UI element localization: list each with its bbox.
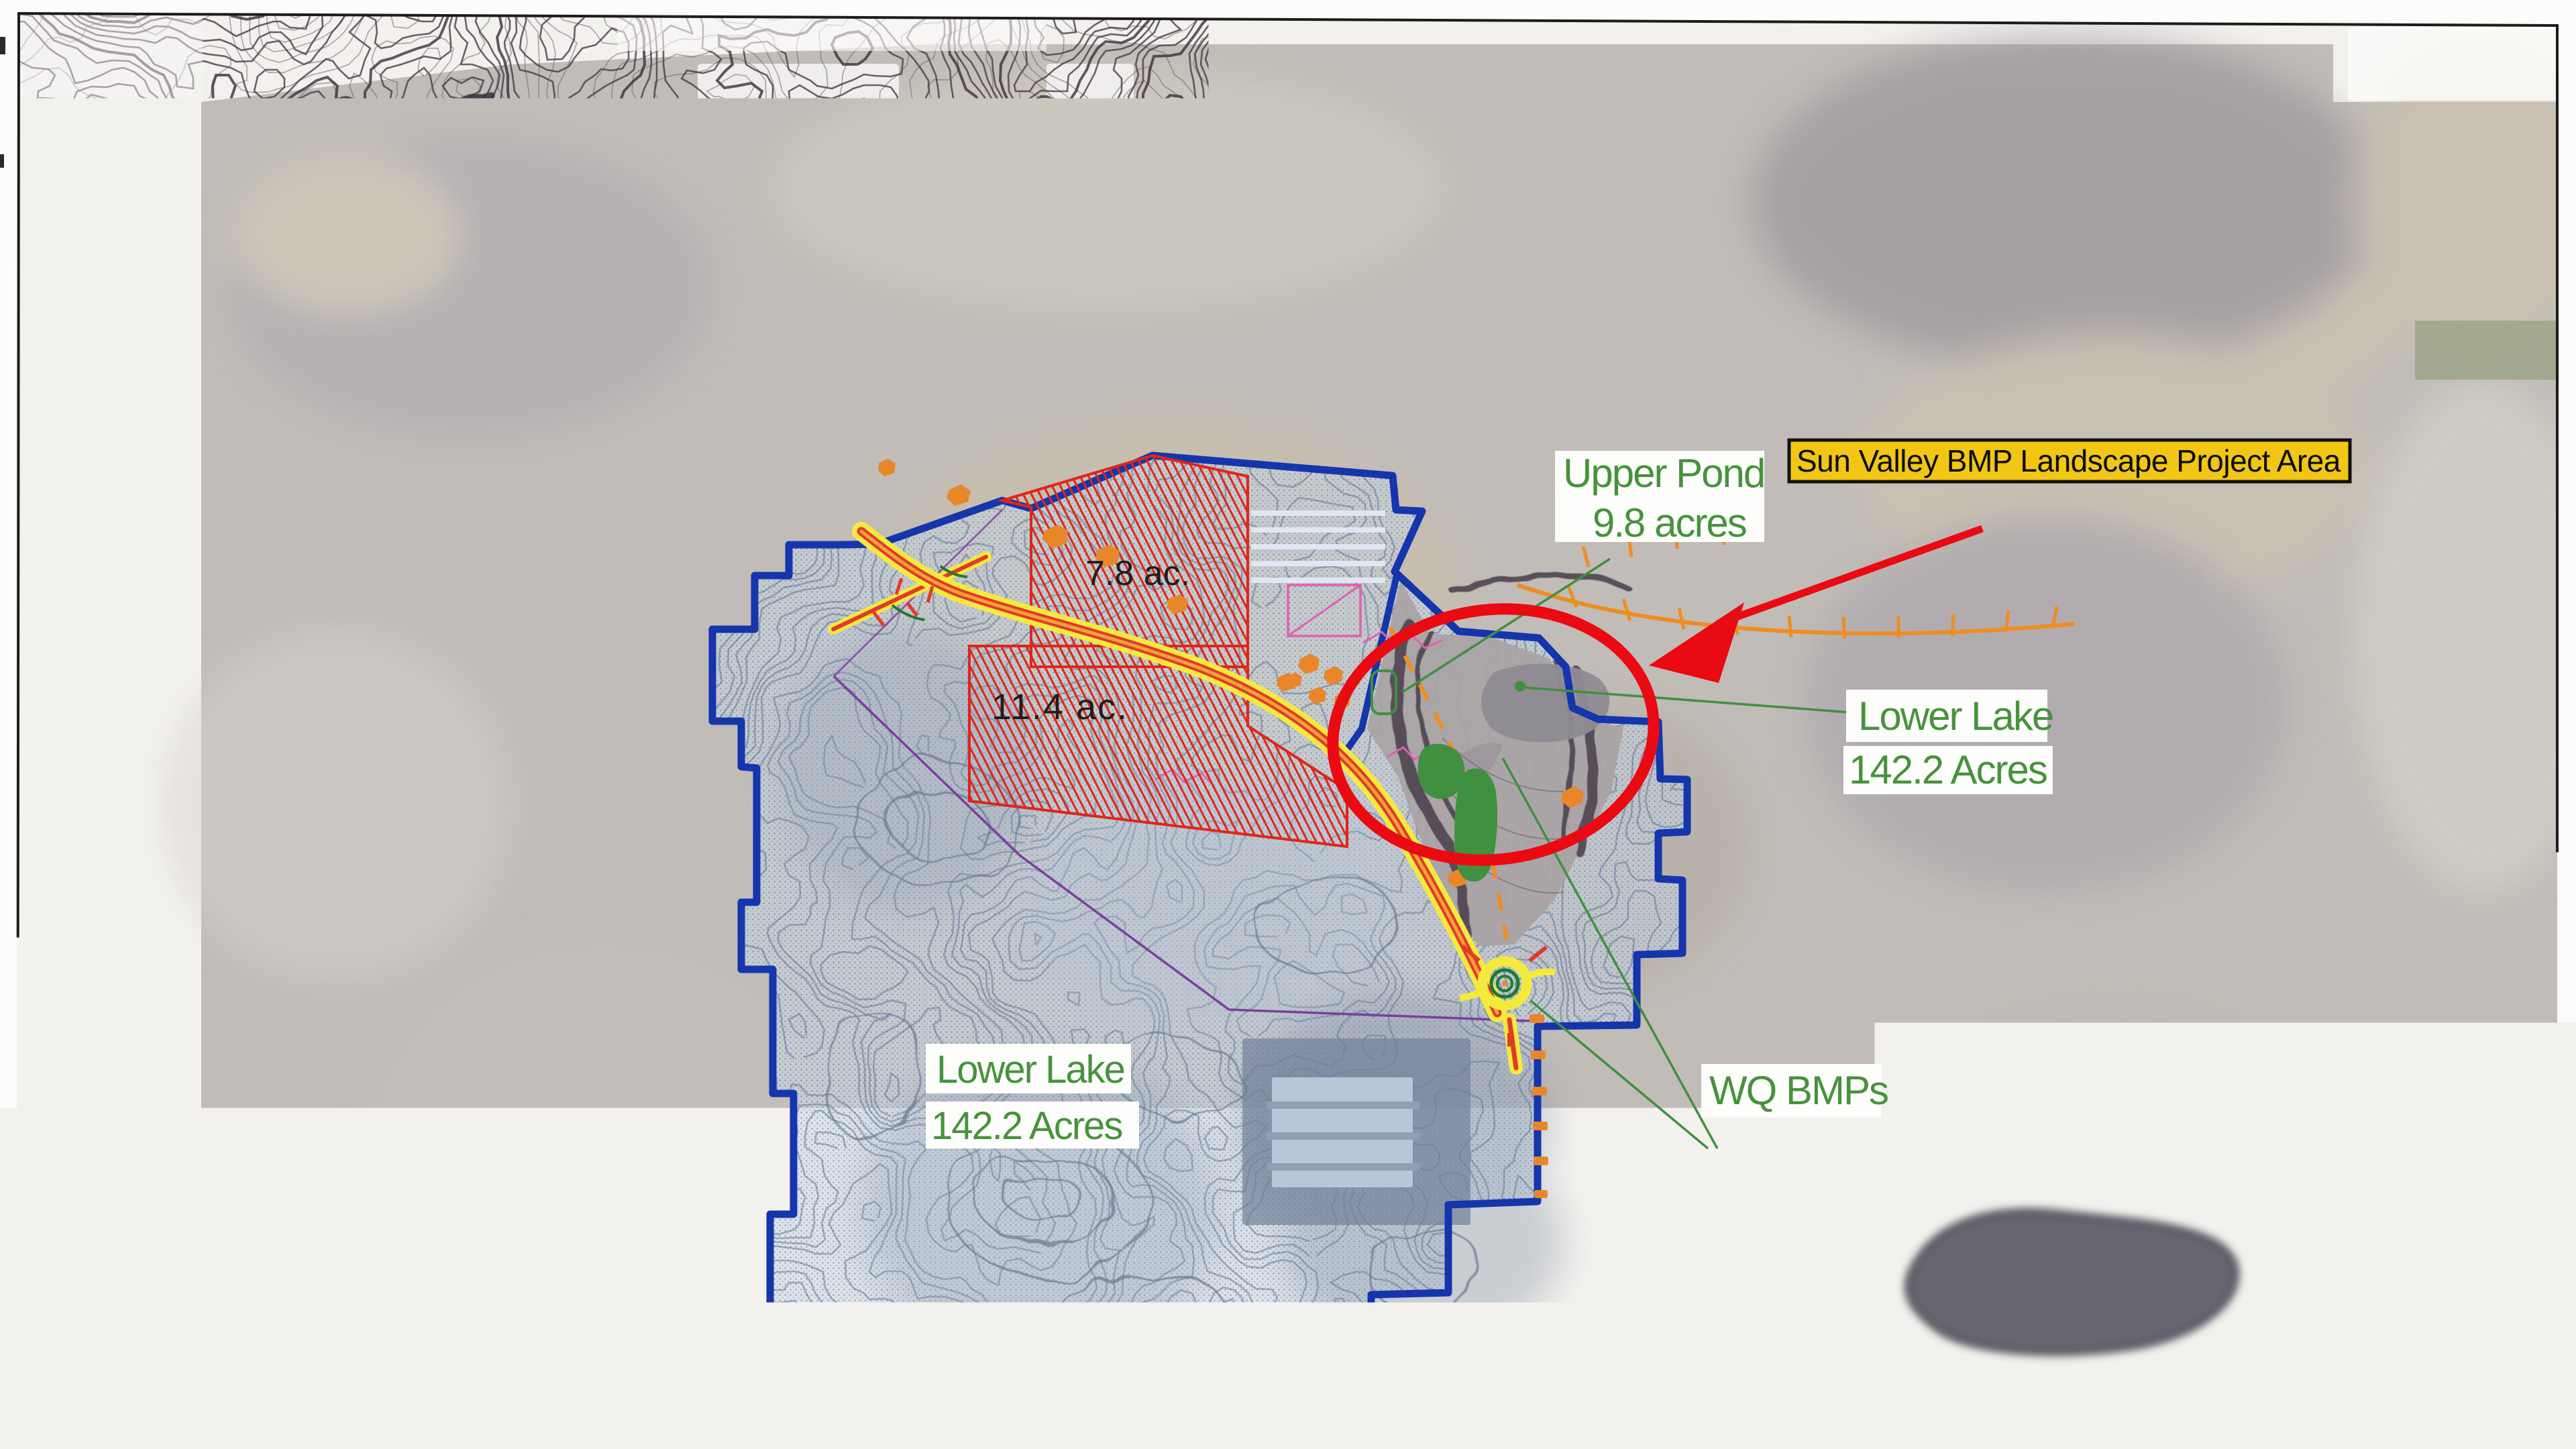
svg-text:142.2 Acres: 142.2 Acres (1849, 747, 2047, 792)
svg-text:Upper Pond: Upper Pond (1563, 451, 1764, 496)
svg-text:WQ BMPs: WQ BMPs (1709, 1068, 1888, 1113)
svg-text:142.2 Acres: 142.2 Acres (931, 1104, 1122, 1148)
svg-text:Lower Lake: Lower Lake (1858, 694, 2053, 739)
svg-text:11.4 ac.: 11.4 ac. (991, 687, 1128, 727)
svg-text:Lower Lake: Lower Lake (936, 1048, 1124, 1091)
svg-text:9.8 acres: 9.8 acres (1593, 500, 1746, 545)
svg-text:Sun Valley BMP Landscape Proje: Sun Valley BMP Landscape Project Area (1796, 443, 2341, 478)
svg-text:7.8 ac.: 7.8 ac. (1085, 554, 1190, 593)
